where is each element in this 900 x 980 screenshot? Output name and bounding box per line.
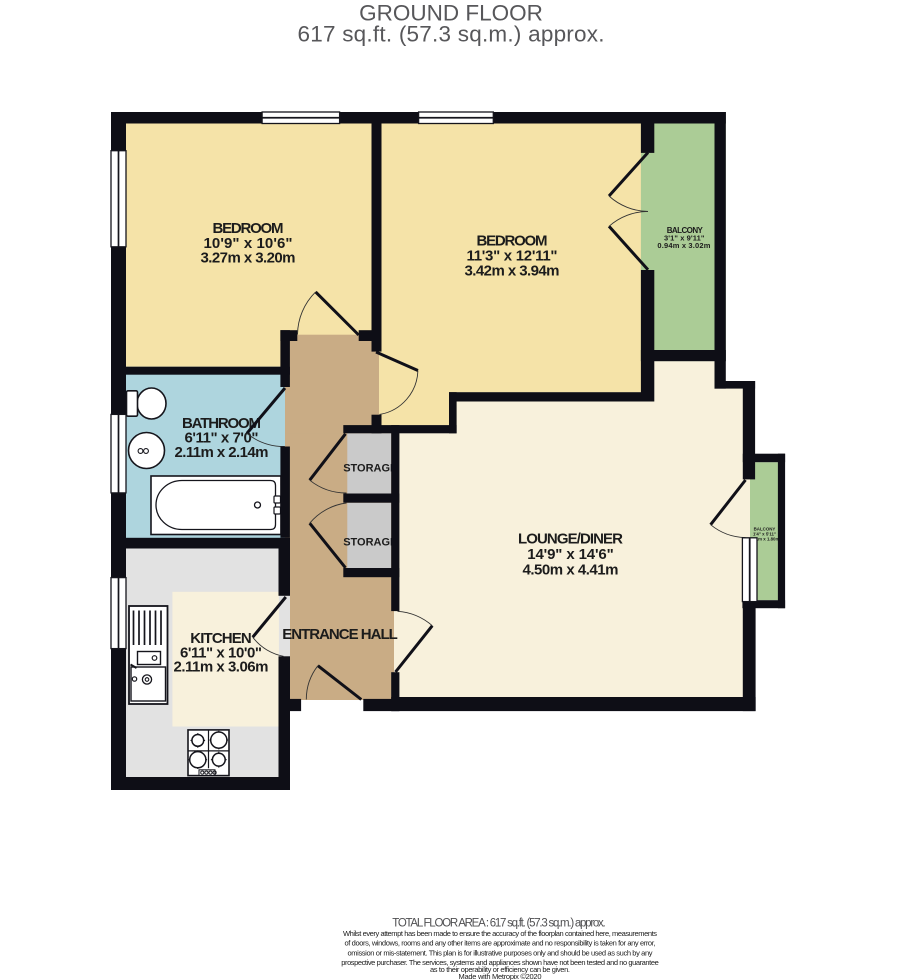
svg-text:14'9" x 14'6": 14'9" x 14'6": [527, 546, 614, 563]
svg-text:0.94m x 3.02m: 0.94m x 3.02m: [657, 241, 710, 250]
svg-text:STORAGE: STORAGE: [343, 537, 397, 549]
svg-text:Made with Metropix ©2020: Made with Metropix ©2020: [459, 972, 542, 980]
svg-text:ENTRANCE HALL: ENTRANCE HALL: [282, 626, 398, 643]
svg-text:of doors, windows, rooms and a: of doors, windows, rooms and any other i…: [345, 939, 656, 948]
svg-text:4.50m x 4.41m: 4.50m x 4.41m: [523, 562, 619, 579]
svg-text:LOUNGE/DINER: LOUNGE/DINER: [518, 530, 623, 547]
svg-text:STORAGE: STORAGE: [343, 463, 397, 475]
svg-text:3.42m x 3.94m: 3.42m x 3.94m: [465, 263, 560, 280]
svg-text:2.11m x 3.06m: 2.11m x 3.06m: [174, 659, 269, 676]
svg-text:TOTAL FLOOR AREA : 617 sq.ft.: TOTAL FLOOR AREA : 617 sq.ft. (57.3 sq.m…: [392, 918, 606, 930]
svg-text:2.11m x 2.14m: 2.11m x 2.14m: [175, 444, 269, 461]
svg-text:Whilst every attempt has been: Whilst every attempt has been made to en…: [343, 929, 657, 938]
svg-text:3.27m x 3.20m: 3.27m x 3.20m: [201, 250, 296, 267]
svg-text:617 sq.ft. (57.3 sq.m.) approx: 617 sq.ft. (57.3 sq.m.) approx.: [298, 22, 605, 47]
svg-text:omission or mis-statement. Thi: omission or mis-statement. This plan is …: [348, 948, 653, 957]
